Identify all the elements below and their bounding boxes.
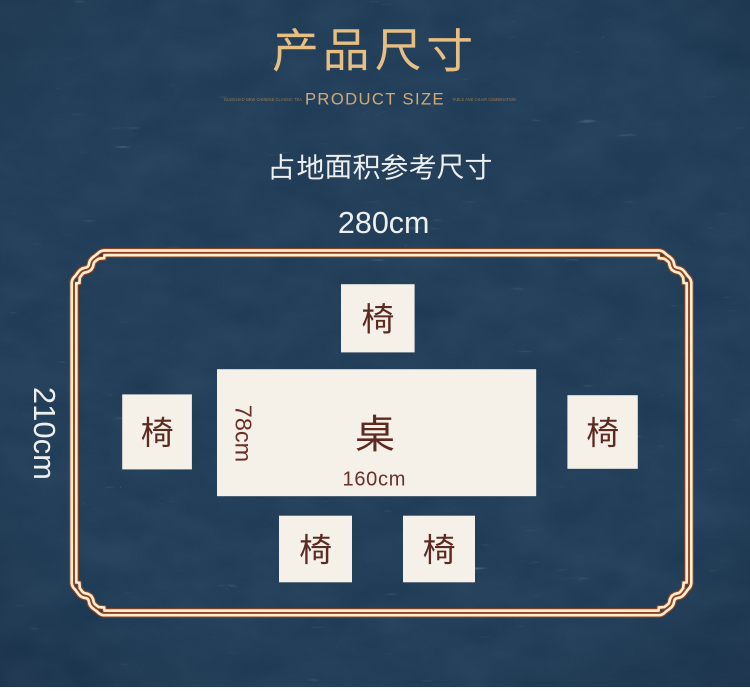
- svg-text:160cm: 160cm: [343, 469, 407, 491]
- svg-text:GUOCHAO NEW CHINESE CLASSIC TE: GUOCHAO NEW CHINESE CLASSIC TEA: [224, 97, 303, 102]
- svg-text:78cm: 78cm: [231, 405, 257, 462]
- svg-text:TABLE AND CHAIR COMBINATION: TABLE AND CHAIR COMBINATION: [452, 97, 516, 102]
- svg-text:210cm: 210cm: [27, 387, 62, 480]
- svg-text:PRODUCT SIZE: PRODUCT SIZE: [305, 89, 445, 108]
- svg-text:280cm: 280cm: [338, 206, 430, 240]
